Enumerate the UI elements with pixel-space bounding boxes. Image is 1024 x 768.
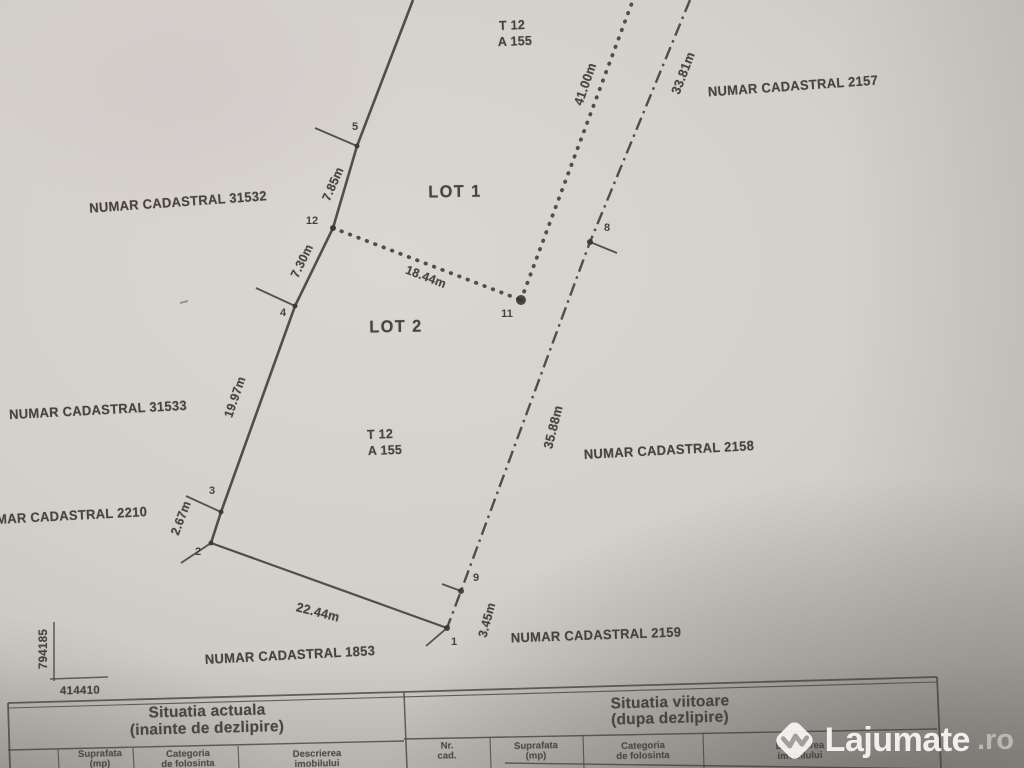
- grid-north-coordinate: 794185: [38, 629, 50, 669]
- table-subcolumn-right-1-l2: (mp): [526, 750, 547, 761]
- point-number-5: 5: [352, 121, 358, 133]
- plan-label-t12-mid: T 12: [367, 426, 394, 442]
- cadastral-plan-photo: T 12A 155NUMAR CADASTRAL 215733.81m41.00…: [0, 0, 1024, 768]
- watermark-tld-text: .ro: [977, 724, 1014, 757]
- point-number-8: 8: [604, 222, 610, 234]
- point-number-9: 9: [473, 572, 479, 584]
- plan-label-lot-2: LOT 2: [369, 317, 423, 338]
- point-number-1: 1: [451, 636, 457, 648]
- watermark-brand-text: Lajumate: [825, 721, 970, 760]
- table-header-future-situation-line2: (dupa dezlipire): [611, 708, 729, 729]
- point-number-12: 12: [306, 215, 318, 227]
- paper-scan: T 12A 155NUMAR CADASTRAL 215733.81m41.00…: [0, 0, 1024, 768]
- table-subcolumn-right-0-l2: cad.: [437, 750, 456, 761]
- point-number-11: 11: [501, 308, 513, 320]
- plan-label-a155-mid: A 155: [368, 442, 403, 458]
- lajumate-watermark: Lajumate.ro: [771, 717, 1014, 764]
- grid-east-coordinate: 414410: [60, 685, 100, 698]
- table-subcolumn-left-2-l2: imobilului: [294, 758, 339, 768]
- point-number-3: 3: [209, 485, 215, 497]
- table-subcolumn-right-2-l2: de folosinta: [616, 750, 670, 762]
- table-subcolumn-left-1-l2: de folosinta: [161, 758, 215, 768]
- point-number-2: 2: [195, 546, 201, 558]
- plan-label-t12-top: T 12: [499, 17, 526, 33]
- point-number-4: 4: [280, 307, 286, 319]
- lajumate-diamond-icon: [771, 717, 818, 764]
- table-subcolumn-left-0-l2: (mp): [90, 758, 111, 768]
- plan-label-lot-1: LOT 1: [428, 182, 482, 203]
- plan-drawing: [0, 0, 1024, 768]
- plan-label-a155-top: A 155: [498, 33, 533, 49]
